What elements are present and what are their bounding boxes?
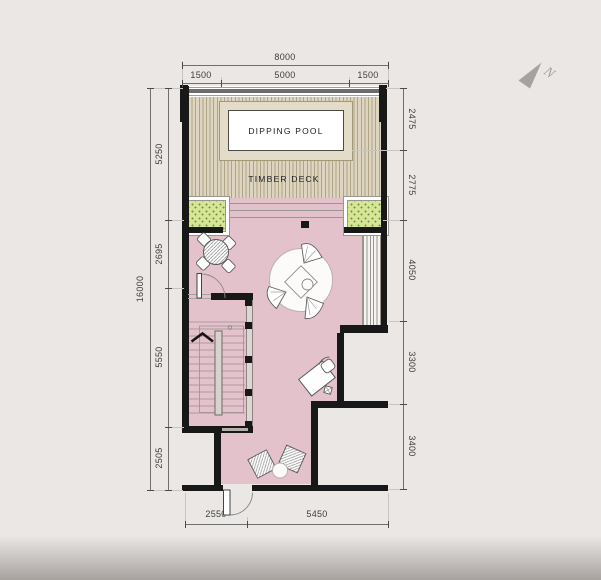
tick [147, 88, 154, 89]
dim-right-seg-4: 3300 [407, 351, 417, 372]
wall-lower-left [214, 433, 221, 492]
dipping-pool-label: DIPPING POOL [248, 126, 323, 136]
wall-jog-top [340, 325, 388, 333]
dim-right-seg-3: 4050 [407, 259, 417, 280]
tick [165, 427, 172, 428]
column-top-right [379, 85, 387, 122]
tick [221, 80, 222, 87]
top-glass-wall [188, 86, 381, 97]
sliding-door-zone [223, 198, 344, 228]
dim-right-seg-5: 3400 [407, 435, 417, 456]
entry-door [224, 490, 253, 515]
living-area-floor [188, 325, 340, 401]
floor-plan-canvas: DIPPING POOL TIMBER DECK [0, 0, 601, 580]
column-top-left [180, 85, 188, 122]
dipping-pool: DIPPING POOL [228, 110, 344, 151]
tick [182, 62, 183, 69]
dim-bottom-seg-1: 2550 [205, 509, 226, 519]
timber-deck-label: TIMBER DECK [248, 174, 319, 184]
wall-right [381, 86, 388, 333]
tick [247, 521, 248, 528]
stair-railing [246, 299, 254, 429]
dim-line-left-total [150, 88, 151, 490]
wall-bottom-3 [318, 485, 388, 492]
dim-left-seg-3: 5550 [154, 346, 164, 367]
dim-right-seg-2: 2775 [407, 174, 417, 195]
tick [400, 220, 407, 221]
wall-bottom-2 [252, 485, 311, 492]
tick [165, 220, 172, 221]
dim-right-seg-1: 2475 [407, 108, 417, 129]
bottom-shadow [0, 536, 601, 580]
wall-stub-right [344, 227, 382, 234]
dim-left-seg-2: 2695 [154, 243, 164, 264]
tick [400, 489, 407, 490]
tick [165, 88, 172, 89]
louver-steps [362, 228, 382, 325]
dim-top-seg-3: 1500 [357, 70, 378, 80]
tick [388, 80, 389, 87]
living-area-floor [188, 228, 380, 325]
wall-bottom-1 [182, 485, 223, 492]
tick [165, 490, 172, 491]
door-mullion [301, 221, 309, 228]
north-arrow: N [519, 63, 558, 89]
lower-room-floor [221, 433, 311, 484]
wall-lower-right [311, 401, 318, 491]
dim-bottom-seg-2: 5450 [306, 509, 327, 519]
dim-left-seg-4: 2505 [154, 447, 164, 468]
wall-stub-left [185, 227, 223, 234]
tick [400, 404, 407, 405]
dim-line-bottom [185, 524, 388, 525]
tick [400, 88, 407, 89]
stair-top-wall [211, 293, 253, 300]
dim-line-top-segments [182, 83, 388, 84]
dim-left-total: 16000 [135, 276, 145, 303]
dim-line-left-segments [168, 88, 169, 490]
dim-line-right [403, 88, 404, 489]
tick [147, 490, 154, 491]
dim-left-seg-1: 5250 [154, 143, 164, 164]
tick [349, 80, 350, 87]
tick [182, 80, 183, 87]
dim-top-seg-2: 5000 [274, 70, 295, 80]
tick [400, 150, 407, 151]
dim-line-top-total [182, 65, 388, 66]
dim-top-seg-1: 1500 [190, 70, 211, 80]
tick [388, 521, 389, 528]
wall-left [182, 86, 189, 432]
tick [388, 62, 389, 69]
wall-jog-bottom [318, 401, 388, 408]
wall-interior-right [337, 333, 344, 408]
tick [165, 288, 172, 289]
north-label: N [540, 64, 558, 83]
tick [185, 521, 186, 528]
tick [400, 321, 407, 322]
dim-top-total: 8000 [274, 52, 295, 62]
